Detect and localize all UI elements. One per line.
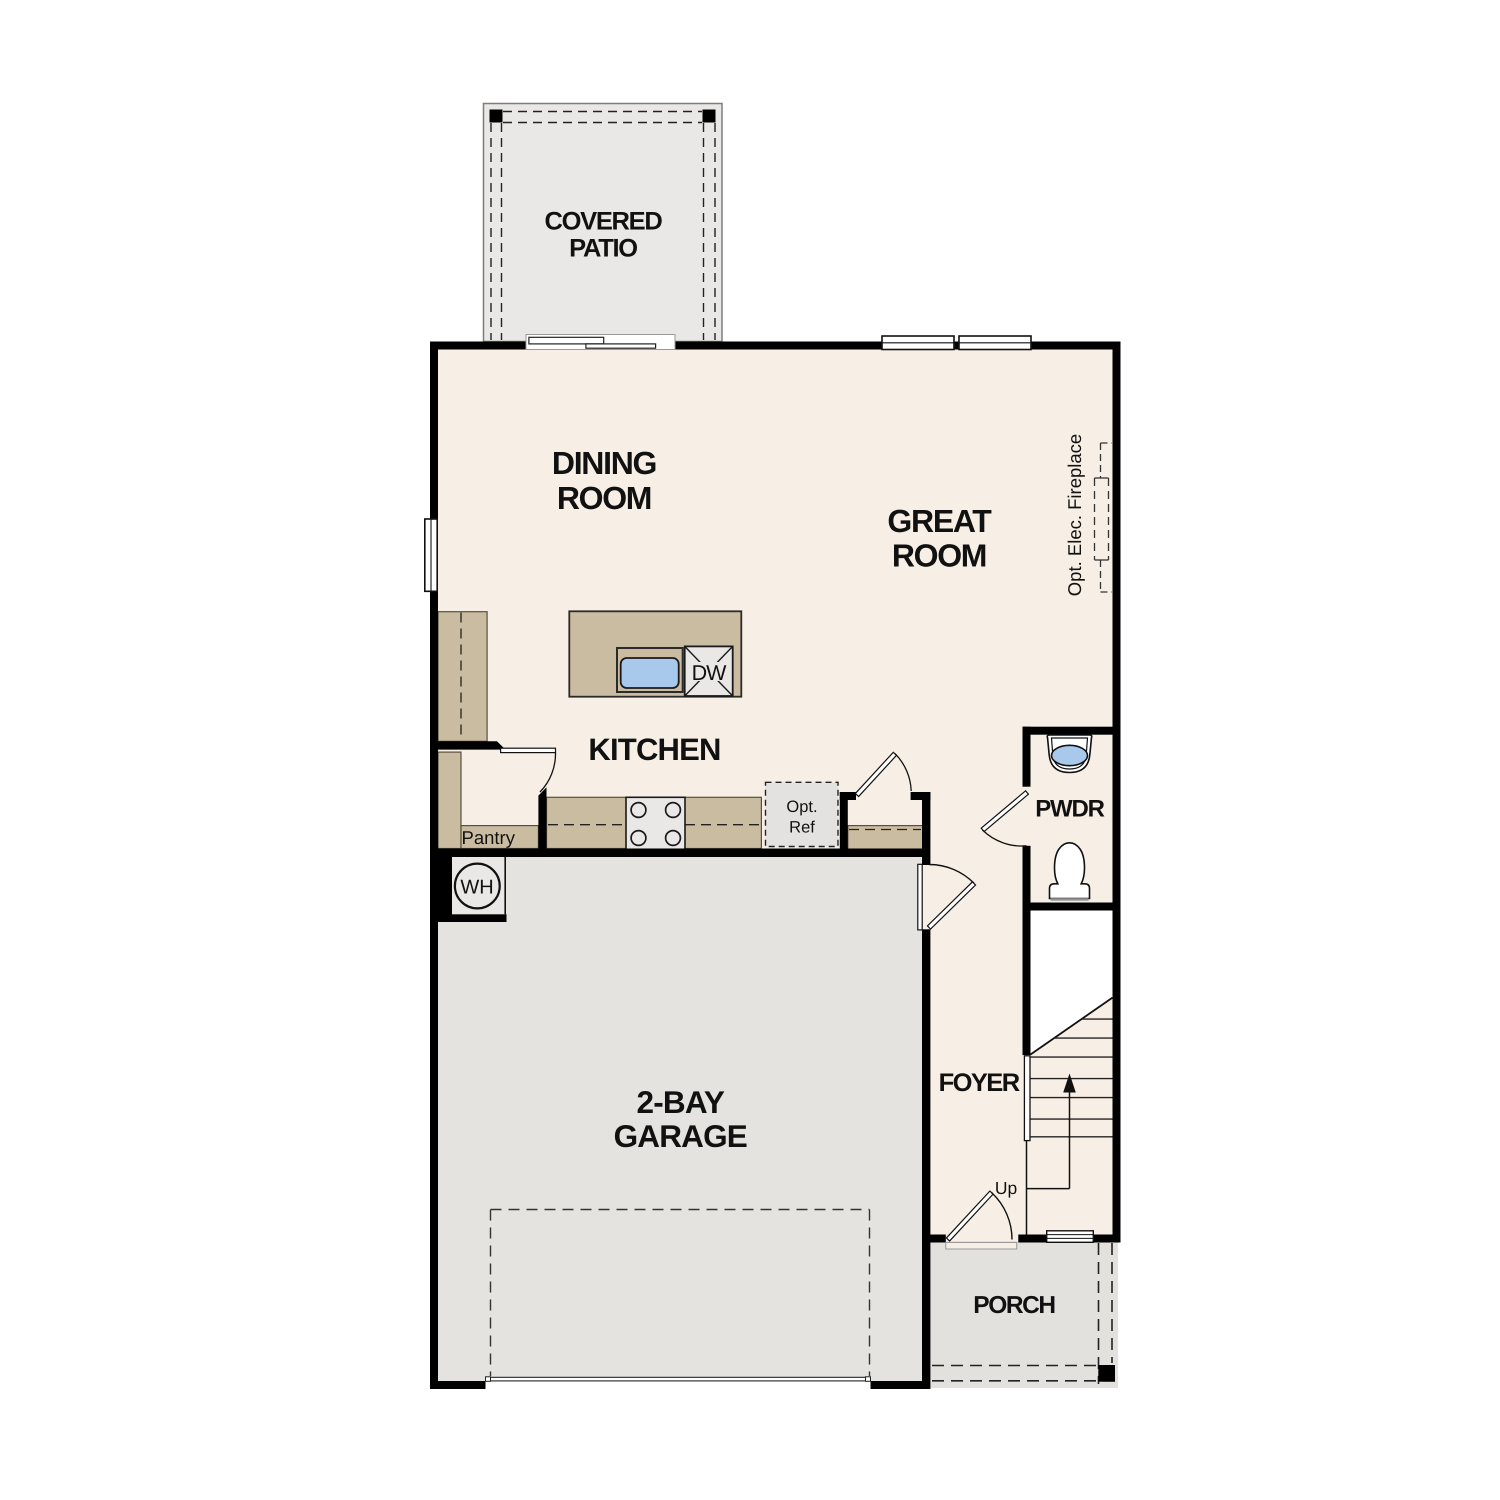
svg-text:PATIO: PATIO (569, 235, 637, 263)
svg-text:KITCHEN: KITCHEN (588, 732, 720, 767)
svg-text:Pantry: Pantry (462, 827, 516, 848)
svg-text:Ref: Ref (789, 819, 815, 837)
svg-text:FOYER: FOYER (939, 1069, 1020, 1097)
svg-text:DINING: DINING (552, 445, 656, 481)
svg-text:GREAT: GREAT (887, 503, 992, 539)
svg-text:WH: WH (460, 877, 493, 899)
svg-text:Opt.: Opt. (786, 798, 817, 816)
svg-text:PWDR: PWDR (1035, 795, 1104, 822)
svg-text:PORCH: PORCH (973, 1292, 1055, 1319)
svg-text:COVERED: COVERED (544, 207, 662, 235)
svg-text:GARAGE: GARAGE (614, 1118, 747, 1154)
svg-text:2-BAY: 2-BAY (636, 1084, 724, 1120)
svg-text:ROOM: ROOM (892, 538, 986, 574)
svg-text:Up: Up (995, 1178, 1017, 1198)
svg-text:Opt. Elec. Fireplace: Opt. Elec. Fireplace (1064, 434, 1085, 596)
svg-text:DW: DW (692, 661, 728, 685)
svg-text:ROOM: ROOM (557, 480, 651, 516)
